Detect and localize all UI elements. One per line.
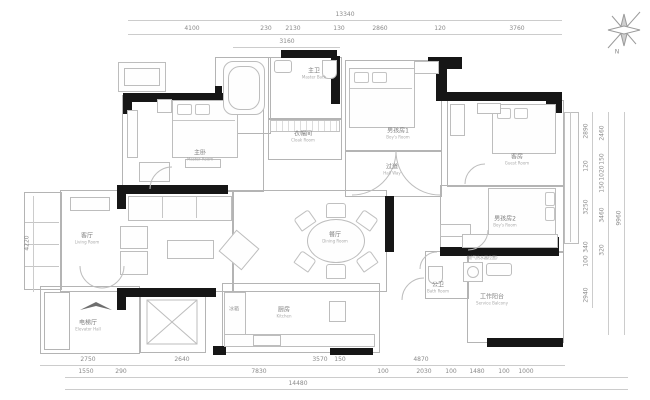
note-heater: (燃气热水器位置) — [466, 255, 497, 261]
door-arc-bath — [420, 252, 437, 269]
dim-line-bottom-2 — [65, 377, 628, 378]
label-boy1: 男孩房1 Boy's Room — [386, 128, 409, 139]
dim-bottom: 7830 — [251, 368, 266, 375]
label-master: 主卧 Master Room — [187, 150, 213, 161]
dim-line-left — [33, 196, 34, 292]
label-boy1-en: Boy's Room — [386, 135, 409, 140]
label-boy2: 男孩房2 Boy's Room — [493, 216, 516, 227]
label-living-en: Living Room — [75, 240, 100, 245]
dim-right: 100 — [583, 255, 590, 266]
label-cloak-en: Cloak Room — [291, 138, 315, 143]
label-dining-en: Dining Room — [322, 239, 348, 244]
dim-top: 2130 — [285, 25, 300, 32]
door-arc-entry — [102, 266, 124, 288]
dim-left: 4220 — [24, 235, 31, 250]
door-arc-service — [402, 278, 424, 300]
compass-north-label: N — [615, 49, 620, 56]
dim-line-bottom-1 — [40, 365, 565, 366]
dim-bottom: 2030 — [416, 368, 431, 375]
dim-bottom: 100 — [377, 368, 388, 375]
label-elevator: 电梯厅 Elevator Hall — [75, 320, 101, 331]
label-guest: 客房 Guest Room — [505, 154, 529, 165]
dim-right: 3250 — [583, 199, 590, 214]
dim-bottom: 150 — [334, 356, 345, 363]
floor-plan-canvas: N 主卧 Master Room 主卫 Master Bath 衣帽间 Cloa… — [0, 0, 650, 400]
label-hallway-en: Hall Way — [383, 171, 400, 176]
dim-bottom: 290 — [115, 368, 126, 375]
dim-top-sub: 3160 — [279, 38, 294, 45]
dim-right: 340 — [583, 241, 590, 252]
label-master-en: Master Room — [187, 157, 213, 162]
label-master-bath-en: Master Bath — [302, 75, 326, 80]
door-arc-guest — [465, 164, 485, 184]
door-arc-hall — [396, 151, 440, 195]
label-bath2: 公卫 Bath Room — [427, 282, 449, 293]
dim-bottom: 3570 — [312, 356, 327, 363]
label-kitchen-en: Kitchen — [276, 314, 291, 319]
dim-bottom: 2640 — [174, 356, 189, 363]
dim-bottom: 100 — [445, 368, 456, 375]
dim-top: 230 — [260, 25, 271, 32]
dim-line-top-row — [128, 34, 562, 35]
dim-right: 1020 — [599, 165, 606, 180]
label-cloak: 衣帽间 Cloak Room — [291, 131, 315, 142]
dim-top: 2860 — [372, 25, 387, 32]
label-hallway: 过道 Hall Way — [383, 164, 400, 175]
label-elevator-en: Elevator Hall — [75, 327, 101, 332]
dim-line-bottom-total — [65, 389, 628, 390]
label-bath2-en: Bath Room — [427, 289, 449, 294]
dim-top: 4100 — [184, 25, 199, 32]
linework-layer — [0, 0, 650, 400]
dim-right: 2890 — [583, 123, 590, 138]
dim-right: 2460 — [599, 125, 606, 140]
dim-right: 120 — [583, 160, 590, 171]
dim-bottom: 2750 — [80, 356, 95, 363]
entry-canopy — [80, 302, 112, 310]
door-arc-entry — [80, 266, 102, 288]
label-kitchen: 厨房 Kitchen — [276, 307, 291, 318]
dim-bottom: 1550 — [78, 368, 93, 375]
label-boy2-en: Boy's Room — [493, 223, 516, 228]
dim-top: 120 — [434, 25, 445, 32]
note-fridge: 冰箱 — [229, 306, 239, 313]
dim-right: 3460 — [599, 207, 606, 222]
label-service-en: Service Balcony — [476, 301, 508, 306]
dim-right-total: 9960 — [616, 210, 623, 225]
dim-bottom: 1480 — [469, 368, 484, 375]
dim-top: 3760 — [509, 25, 524, 32]
dim-right: 2940 — [583, 287, 590, 302]
door-arc-master — [150, 167, 172, 189]
dim-right: 150 — [599, 181, 606, 192]
dim-bottom-total: 14480 — [288, 380, 307, 387]
dim-bottom: 100 — [498, 368, 509, 375]
label-service: 工作阳台 Service Balcony — [476, 294, 508, 305]
door-arc-boy2 — [468, 230, 488, 250]
dim-line-right-1 — [592, 112, 593, 308]
dim-line-right-3 — [624, 112, 625, 335]
label-master-bath: 主卫 Master Bath — [302, 68, 326, 79]
label-dining: 餐厅 Dining Room — [322, 232, 348, 243]
dim-line-right-2 — [608, 112, 609, 335]
dim-right: 150 — [599, 153, 606, 164]
dim-right: 320 — [599, 244, 606, 255]
dim-top-total: 13340 — [335, 11, 354, 18]
dim-line-top-total — [128, 20, 562, 21]
dim-line-top-sub — [233, 47, 340, 48]
label-living: 客厅 Living Room — [75, 233, 100, 244]
label-guest-en: Guest Room — [505, 161, 529, 166]
compass-icon — [608, 12, 640, 48]
dim-bottom: 1000 — [518, 368, 533, 375]
dim-bottom: 4870 — [413, 356, 428, 363]
dim-top: 130 — [333, 25, 344, 32]
